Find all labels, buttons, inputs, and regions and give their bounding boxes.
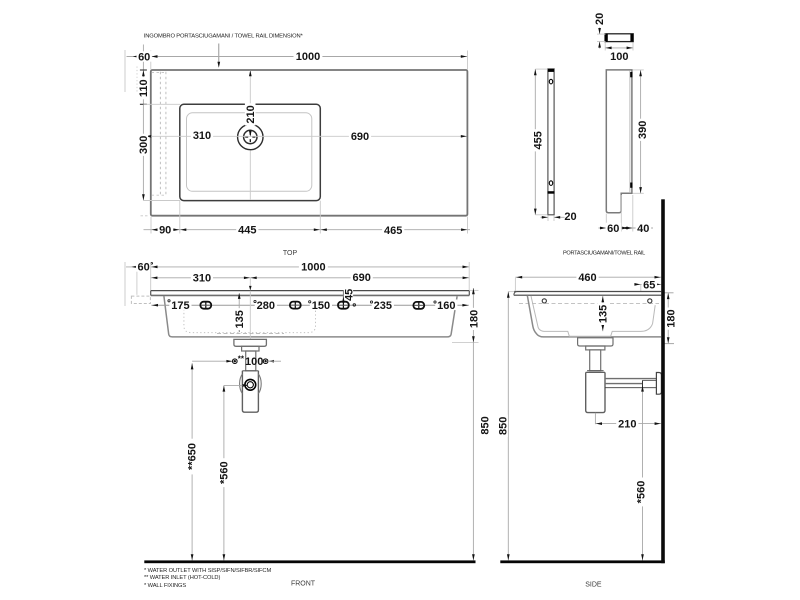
svg-text:300: 300 <box>138 136 150 154</box>
svg-text:310: 310 <box>193 130 211 142</box>
svg-text:850: 850 <box>498 417 510 435</box>
svg-text:*560: *560 <box>219 461 231 484</box>
svg-text:100: 100 <box>245 356 263 368</box>
svg-text:235: 235 <box>374 300 392 312</box>
svg-text:*560: *560 <box>636 481 648 504</box>
svg-text:150: 150 <box>312 300 330 312</box>
svg-text:60: 60 <box>138 51 150 63</box>
svg-text:20: 20 <box>564 211 576 223</box>
svg-text:310: 310 <box>193 272 211 284</box>
svg-text:45: 45 <box>343 289 355 301</box>
svg-text:60: 60 <box>607 223 619 235</box>
svg-text:90: 90 <box>159 225 171 237</box>
svg-text:135: 135 <box>234 310 246 328</box>
svg-text:1000: 1000 <box>301 262 325 274</box>
svg-text:20: 20 <box>594 13 606 25</box>
svg-text:**650: **650 <box>186 443 198 470</box>
svg-text:* WALL FIXINGS: * WALL FIXINGS <box>144 583 186 589</box>
svg-text:** WATER INLET (HOT-COLD): ** WATER INLET (HOT-COLD) <box>144 575 220 581</box>
svg-text:INGOMBRO PORTASCIUGAMANI / TOW: INGOMBRO PORTASCIUGAMANI / TOWEL RAIL DI… <box>144 34 304 40</box>
svg-text:180: 180 <box>468 310 480 328</box>
svg-text:1000: 1000 <box>296 51 320 63</box>
svg-text:65: 65 <box>643 279 655 291</box>
svg-text:210: 210 <box>245 105 257 123</box>
svg-text:850: 850 <box>479 416 491 434</box>
svg-text:280: 280 <box>257 300 275 312</box>
svg-text:40: 40 <box>637 223 649 235</box>
svg-text:180: 180 <box>666 309 678 327</box>
svg-text:460: 460 <box>578 272 596 284</box>
svg-text:135: 135 <box>598 305 610 323</box>
svg-text:PORTASCIUGAMANI/TOWEL RAIL: PORTASCIUGAMANI/TOWEL RAIL <box>563 251 645 257</box>
svg-text:100: 100 <box>610 51 628 63</box>
svg-text:690: 690 <box>353 272 371 284</box>
svg-text:175: 175 <box>171 300 189 312</box>
svg-text:FRONT: FRONT <box>291 581 316 588</box>
svg-text:465: 465 <box>384 225 402 237</box>
svg-text:210: 210 <box>618 418 636 430</box>
svg-text:* WATER OUTLET WITH SISP/SIFN: * WATER OUTLET WITH SISP/SIFN/SIFBR/SIFC… <box>144 568 271 574</box>
svg-text:SIDE: SIDE <box>585 581 602 588</box>
svg-text:TOP: TOP <box>283 250 298 257</box>
svg-text:60: 60 <box>137 261 149 273</box>
svg-text:445: 445 <box>238 225 256 237</box>
svg-text:390: 390 <box>637 121 649 139</box>
svg-text:455: 455 <box>533 131 545 149</box>
svg-text:**: ** <box>238 355 245 364</box>
svg-text:110: 110 <box>138 79 150 97</box>
svg-text:690: 690 <box>351 131 369 143</box>
svg-text:160: 160 <box>437 300 455 312</box>
